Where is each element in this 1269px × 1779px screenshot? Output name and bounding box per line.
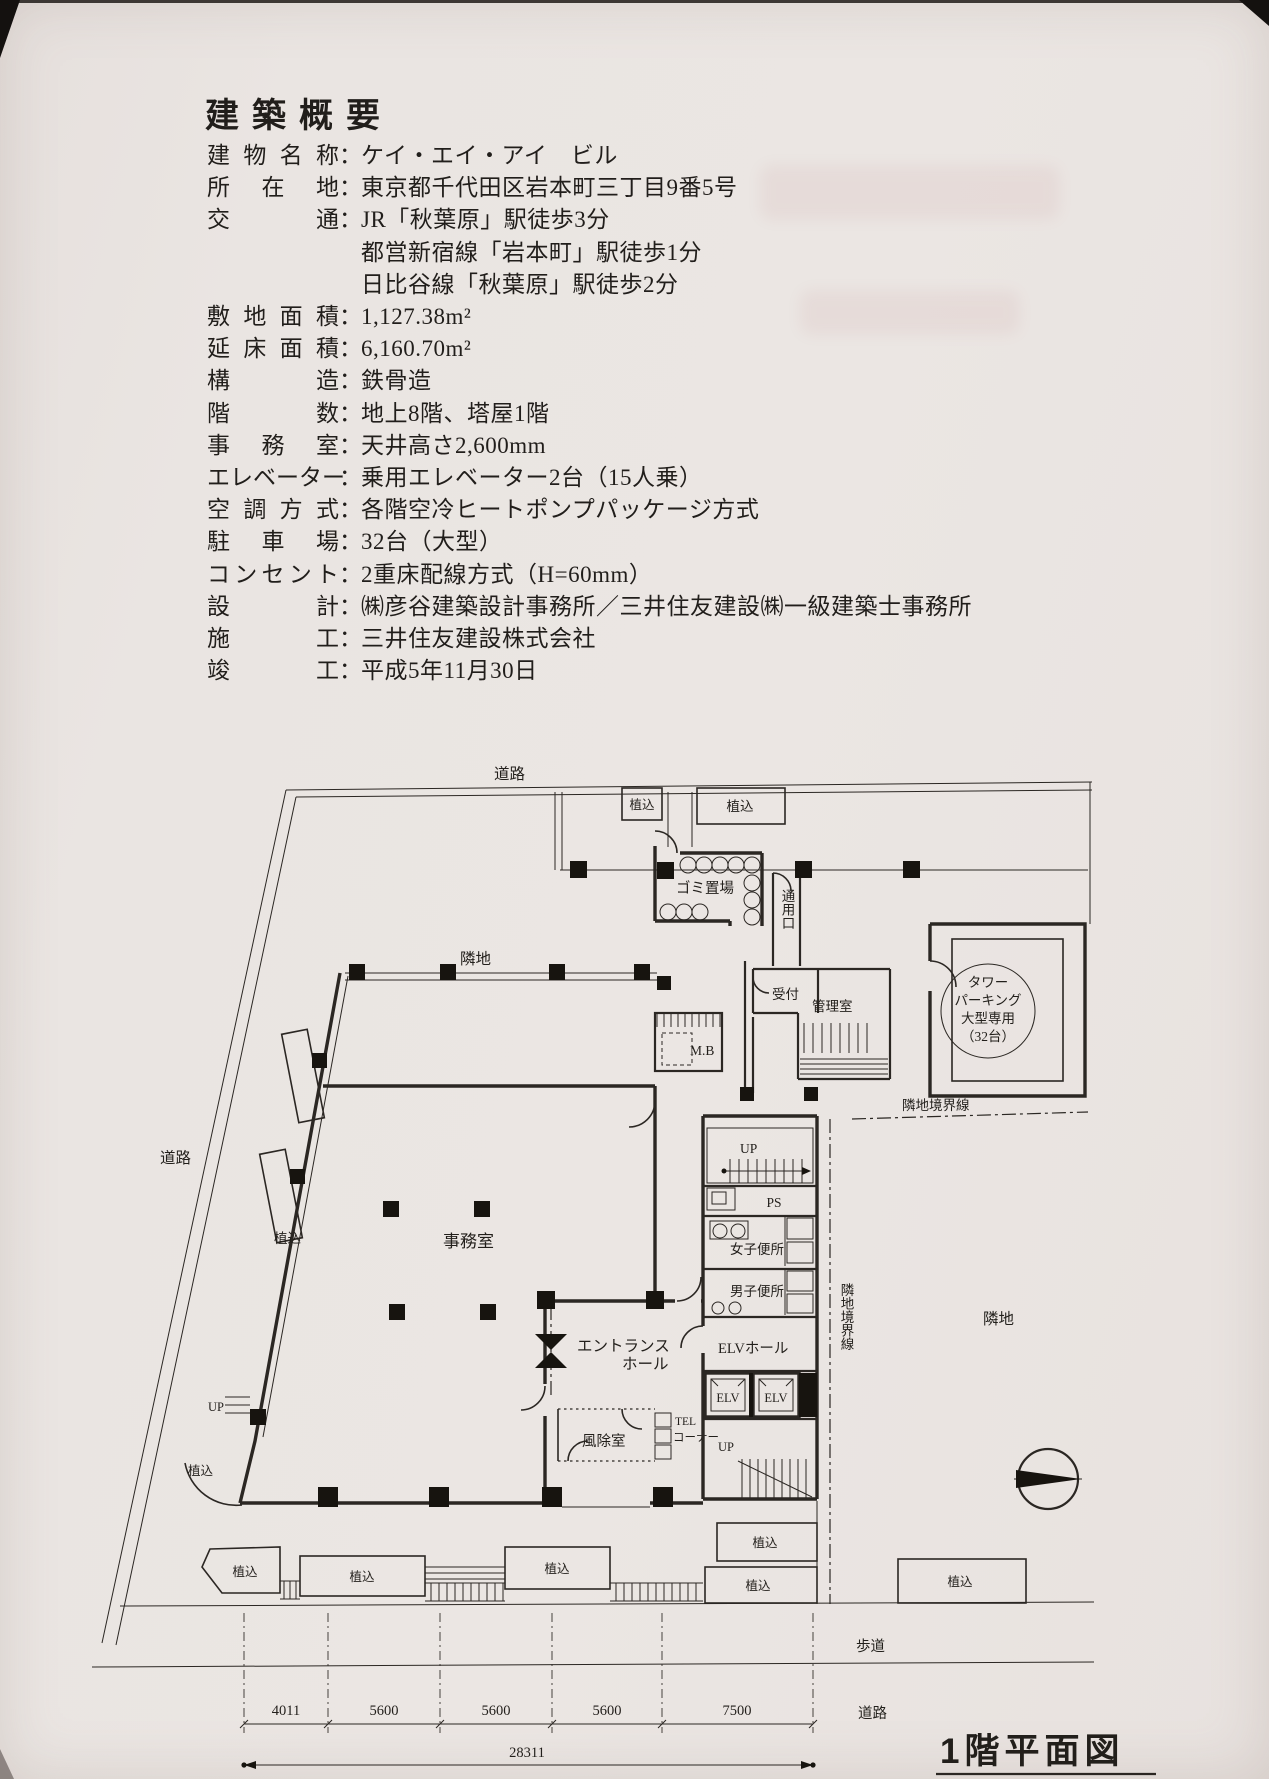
elevator-label: ELV — [716, 1391, 739, 1405]
floor-plan-svg: 道路 道路 歩道 道路 隣地 隣地 隣地境界線 隣地境界線 植込 植込 — [90, 761, 1182, 1779]
spec-row-completion: 竣工：平成5年11月30日 — [207, 655, 1107, 687]
site-boundary-lines — [830, 1112, 1088, 1604]
sidewalk-label: 歩道 — [856, 1638, 885, 1655]
spec-row-building-name: 建物名称：ケイ・エイ・アイ ビル — [207, 140, 1107, 172]
floor-plan: 道路 道路 歩道 道路 隣地 隣地 隣地境界線 隣地境界線 植込 植込 — [90, 761, 1182, 1779]
meter-box-label: M.B — [690, 1043, 714, 1058]
tower-parking-label-3: 大型専用 — [961, 1011, 1015, 1026]
entrance-hall-label-1: エントランス — [577, 1338, 670, 1355]
tel-corner-label-1: TEL — [675, 1416, 696, 1428]
dim-label-5: 7500 — [723, 1703, 752, 1719]
spec-value: ケイ・エイ・アイ ビル — [361, 143, 618, 168]
womens-wc-label: 女子便所 — [730, 1241, 784, 1257]
tower-parking-label-4: （32台） — [961, 1029, 1015, 1044]
spec-row-floor-area: 延床面積：6,160.70m² — [207, 333, 1107, 365]
page-title: 建築概要 — [205, 88, 393, 137]
pipe-shaft — [707, 1188, 735, 1210]
scan-edge-artifact — [0, 0, 1269, 3]
spec-row-access-3: 日比谷線「秋葉原」駅徒歩2分 — [207, 269, 1107, 301]
site-boundary — [92, 782, 1094, 1667]
dim-total-label: 28311 — [509, 1745, 545, 1761]
tower-parking-block — [930, 924, 1085, 1096]
boundary-label-horizontal: 隣地境界線 — [902, 1098, 970, 1113]
tower-parking-label-2: パーキング — [954, 993, 1021, 1008]
scan-corner-artifact — [1239, 0, 1269, 26]
spec-row-access: 交通：JR「秋葉原」駅徒歩3分 — [207, 204, 1107, 236]
west-up-label: UP — [208, 1400, 224, 1414]
spec-separator: ： — [339, 140, 361, 172]
spec-row-site-area: 敷地面積：1,127.38m² — [207, 301, 1107, 333]
tel-corner-label-2: コーナー — [673, 1431, 719, 1444]
spec-row-floors: 階数：地上8階、塔屋1階 — [207, 398, 1107, 430]
spec-row-elevator: エレベーター：乗用エレベーター2台（15人乗） — [207, 462, 1107, 494]
planting-label: 植込 — [752, 1535, 778, 1550]
plan-title: 1階平面図 — [940, 1732, 1124, 1771]
neighbor-label-nw: 隣地 — [460, 950, 491, 968]
office-label: 事務室 — [443, 1232, 494, 1251]
road-label-top: 道路 — [494, 765, 526, 783]
dim-label-1: 4011 — [272, 1703, 300, 1719]
service-entrance-label: 通用口 — [780, 889, 796, 930]
planting-label: 植込 — [629, 797, 655, 812]
stairs-up-label: UP — [740, 1141, 757, 1156]
manager-room-label: 管理室 — [812, 998, 853, 1014]
spec-row-construction: 施工：三井住友建設株式会社 — [207, 623, 1107, 655]
reception-label: 受付 — [772, 987, 799, 1002]
planting-label: 植込 — [274, 1231, 301, 1246]
north-arrow-icon — [1014, 1449, 1082, 1509]
planting-label: 植込 — [947, 1574, 973, 1589]
scan-corner-artifact — [0, 1749, 14, 1779]
spec-row-design: 設計：㈱彦谷建築設計事務所／三井住友建設㈱一級建築士事務所 — [207, 591, 1107, 623]
neighbor-label-east: 隣地 — [983, 1310, 1014, 1328]
planting-label: 植込 — [188, 1463, 214, 1478]
elevator-hall-label: ELVホール — [718, 1341, 788, 1357]
south-stairs-up-label: UP — [718, 1440, 734, 1454]
tower-parking-label-1: タワー — [968, 975, 1009, 990]
planting-label: 植込 — [544, 1561, 570, 1576]
planting-label: 植込 — [349, 1569, 375, 1584]
road-label-bottom: 道路 — [858, 1705, 887, 1722]
planting-label: 植込 — [232, 1564, 258, 1579]
south-planters — [202, 1501, 1026, 1604]
south-stairs — [738, 1459, 812, 1499]
spec-row-outlet: コンセント：2重床配線方式（H=60mm） — [207, 559, 1107, 591]
pipe-shaft-label: PS — [766, 1195, 781, 1210]
planting-label: 植込 — [727, 799, 755, 814]
road-label-left: 道路 — [160, 1149, 192, 1167]
main-stairs — [722, 1159, 812, 1183]
spec-row-access-2: 都営新宿線「岩本町」駅徒歩1分 — [207, 237, 1107, 269]
entrance-hall-label-2: ホール — [622, 1356, 669, 1373]
planting-label: 植込 — [745, 1578, 771, 1593]
dim-label-3: 5600 — [482, 1703, 511, 1719]
elevator-label: ELV — [764, 1391, 787, 1405]
structural-columns — [318, 861, 920, 1507]
dim-label-4: 5600 — [593, 1703, 622, 1719]
spec-label: 建物名称 — [207, 140, 339, 172]
womens-wc-fixtures — [710, 1216, 813, 1266]
building-spec-list: 建物名称：ケイ・エイ・アイ ビル 所在地：東京都千代田区岩本町三丁目9番5号 交… — [207, 140, 1107, 687]
scan-corner-artifact — [0, 0, 20, 58]
boundary-label-vertical: 隣地境界線 — [839, 1283, 855, 1351]
spec-row-address: 所在地：東京都千代田区岩本町三丁目9番5号 — [207, 172, 1107, 204]
dim-label-2: 5600 — [370, 1703, 399, 1719]
spec-row-office-ceiling: 事務室：天井高さ2,600mm — [207, 430, 1107, 462]
scanned-building-overview-sheet: 建築概要 建物名称：ケイ・エイ・アイ ビル 所在地：東京都千代田区岩本町三丁目9… — [0, 0, 1269, 1779]
manager-room-hatch — [800, 1023, 888, 1074]
spec-row-structure: 構造：鉄骨造 — [207, 365, 1107, 397]
mens-wc-label: 男子便所 — [730, 1284, 784, 1299]
core-walls — [681, 1116, 817, 1499]
spec-row-parking: 駐車場：32台（大型） — [207, 526, 1107, 558]
spec-row-hvac: 空調方式：各階空冷ヒートポンプパッケージ方式 — [207, 494, 1107, 526]
windbreak-room-label: 風除室 — [582, 1433, 626, 1450]
garbage-area-label: ゴミ置場 — [676, 879, 734, 897]
